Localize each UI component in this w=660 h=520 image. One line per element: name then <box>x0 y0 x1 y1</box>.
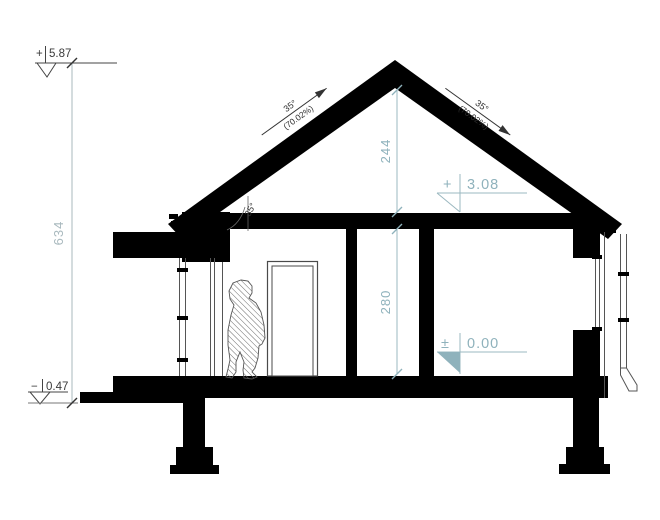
attic-level-value: 3.08 <box>467 177 499 193</box>
section-drawing-page: + 5.87 634 − 0.47 244 280 + <box>0 0 660 520</box>
building-structure <box>80 60 622 474</box>
exterior-wall-right-top <box>573 216 600 258</box>
floor-level-value: 0.00 <box>467 336 499 352</box>
left-dimension: + 5.87 634 − 0.47 <box>28 46 117 408</box>
gutter-left-detail2 <box>171 221 178 226</box>
eave-beam <box>113 232 230 258</box>
foundation-right <box>559 398 610 474</box>
room-height-label: 280 <box>378 290 393 315</box>
floor-level-triangle <box>437 352 460 373</box>
section-drawing-canvas: + 5.87 634 − 0.47 244 280 + <box>0 0 660 520</box>
window-right-wall <box>592 255 602 331</box>
interior-wall-left <box>346 229 357 376</box>
downpipe-left <box>177 258 188 376</box>
pitch-arrow-right <box>498 125 512 138</box>
interior-dimensions: 244 280 <box>378 85 402 379</box>
total-height-label: 634 <box>51 221 66 246</box>
attic-level-sign: + <box>443 177 452 193</box>
roof-right-slope <box>395 60 622 239</box>
terrain-level-sign: − <box>31 381 38 393</box>
level-marker-floor: ± 0.00 <box>437 333 527 374</box>
ridge-level-sign: + <box>36 48 43 60</box>
downpipe-right <box>618 234 637 391</box>
downpipe-shoe <box>621 368 638 391</box>
attic-height-label: 244 <box>378 139 393 164</box>
pitch-arrow-left <box>315 85 329 98</box>
door <box>268 262 318 377</box>
terrain-level-value: 0.47 <box>46 381 68 393</box>
level-marker-attic: + 3.08 <box>437 174 527 212</box>
level-marker-terrain: − 0.47 <box>28 379 78 408</box>
person-figure <box>226 280 265 379</box>
gutter-right-detail2 <box>609 228 616 233</box>
ridge-level-value: 5.87 <box>49 48 71 60</box>
gutter-left-detail <box>169 214 178 219</box>
level-marker-ridge: + 5.87 <box>35 46 117 77</box>
ceiling-slab <box>200 213 577 229</box>
gutter-right-detail <box>607 222 616 227</box>
interior-wall-right <box>419 229 434 376</box>
foundation-left <box>170 398 219 474</box>
floor-level-sign: ± <box>441 336 450 352</box>
